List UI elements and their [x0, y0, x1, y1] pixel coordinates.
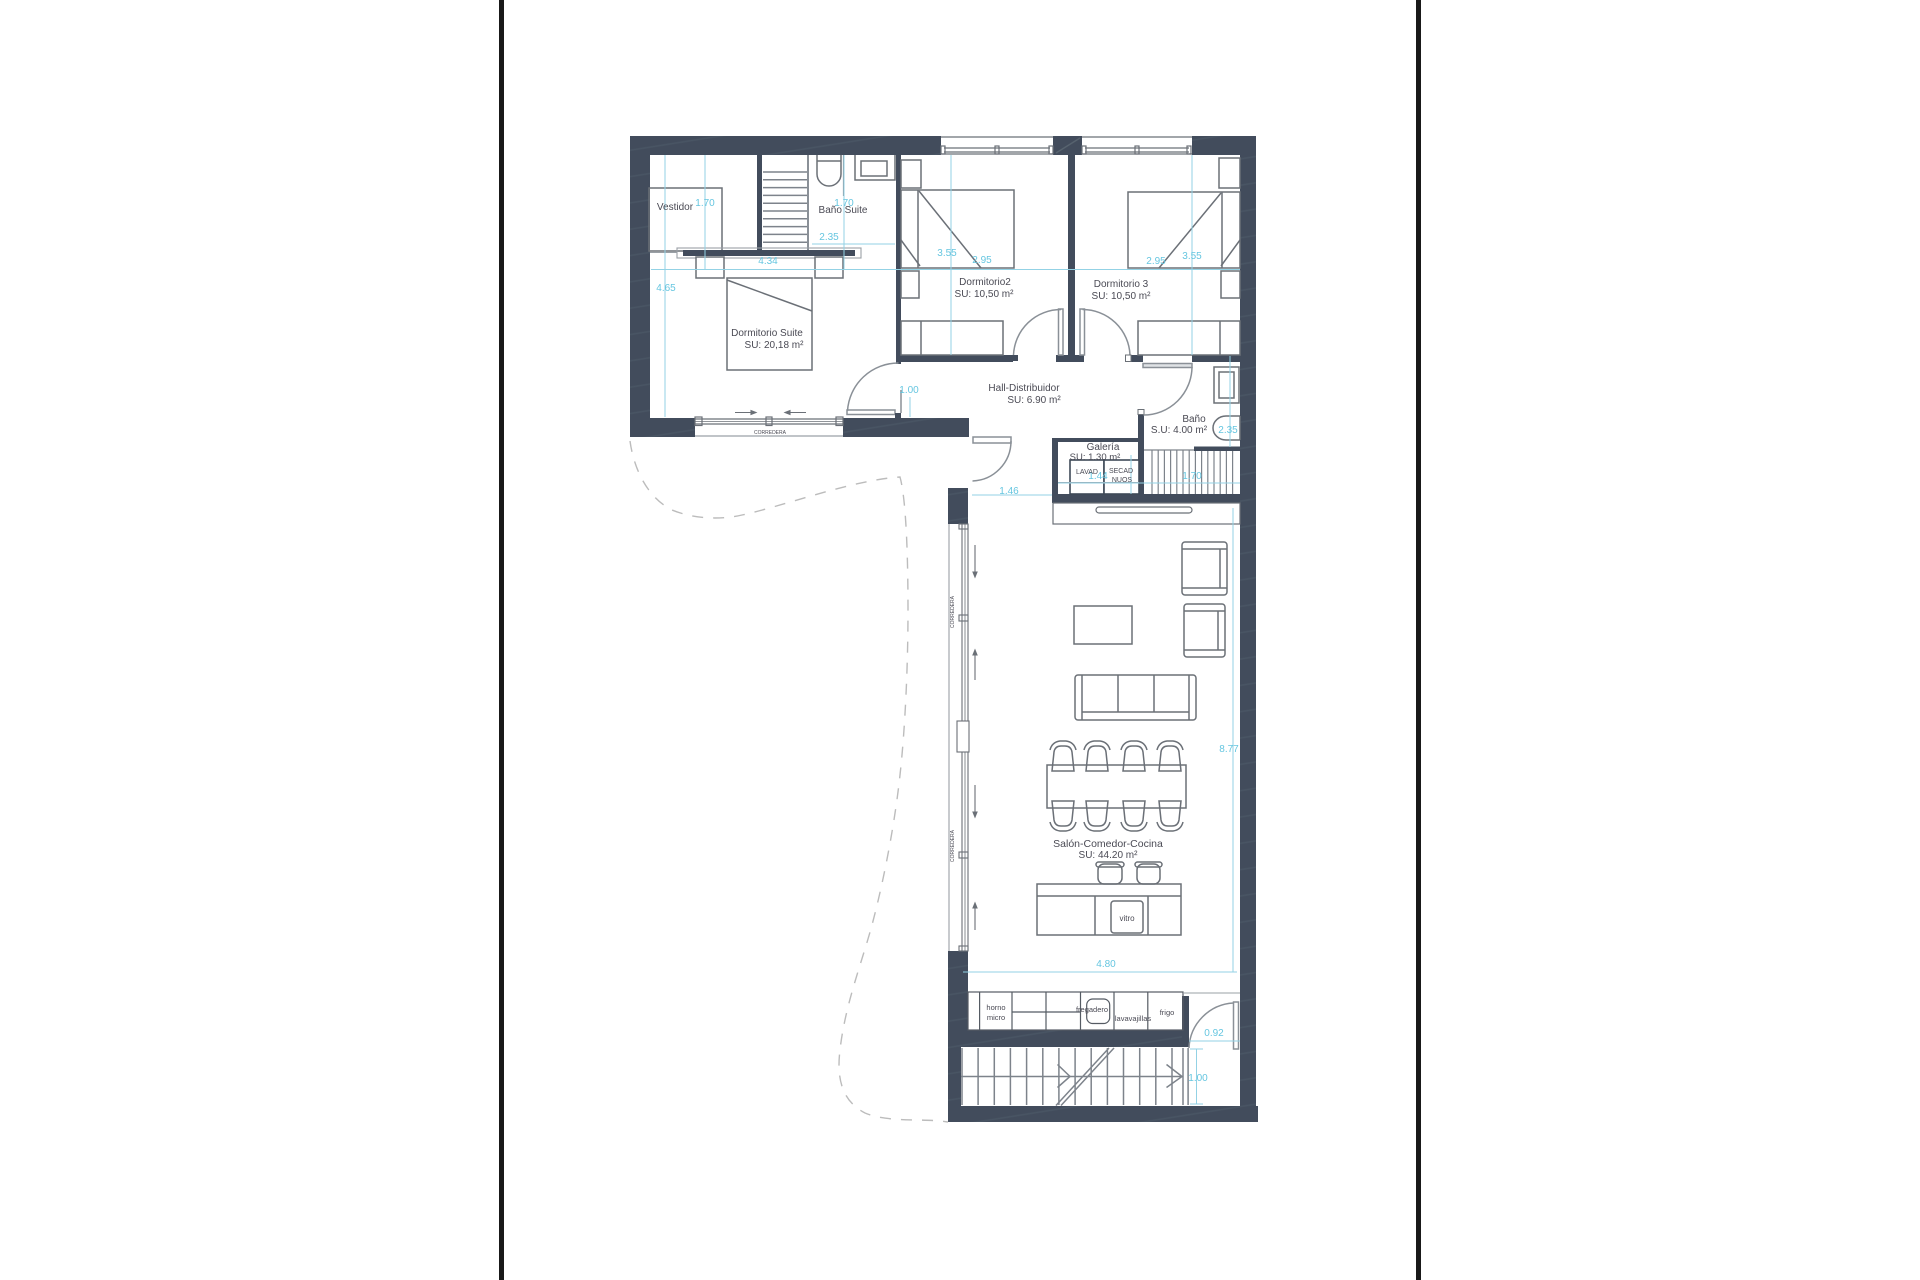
- svg-text:3.55: 3.55: [937, 248, 957, 259]
- svg-text:4.80: 4.80: [1096, 959, 1116, 970]
- svg-text:SU: 1.30 m²: SU: 1.30 m²: [1070, 452, 1121, 463]
- svg-text:Baño: Baño: [1182, 414, 1206, 425]
- svg-text:Baño Suite: Baño Suite: [819, 205, 868, 216]
- svg-text:SU: 10,50 m²: SU: 10,50 m²: [1092, 291, 1152, 302]
- svg-text:NUOS: NUOS: [1112, 477, 1133, 484]
- svg-text:1.70: 1.70: [1182, 471, 1202, 482]
- svg-text:CORREDERA: CORREDERA: [950, 829, 956, 862]
- svg-text:0.92: 0.92: [1204, 1028, 1224, 1039]
- svg-text:SU: 44.20 m²: SU: 44.20 m²: [1079, 850, 1139, 861]
- svg-text:CORREDERA: CORREDERA: [950, 595, 956, 628]
- svg-text:2.35: 2.35: [819, 232, 839, 243]
- svg-text:horno: horno: [986, 1003, 1005, 1012]
- svg-text:2.95: 2.95: [1146, 256, 1166, 267]
- svg-text:3.55: 3.55: [1182, 251, 1202, 262]
- svg-text:Vestidor: Vestidor: [657, 202, 694, 213]
- svg-text:SU: 6.90 m²: SU: 6.90 m²: [1007, 395, 1061, 406]
- svg-text:2.35: 2.35: [1218, 425, 1238, 436]
- svg-text:vitro: vitro: [1119, 914, 1135, 923]
- svg-text:S.U: 4.00 m²: S.U: 4.00 m²: [1151, 425, 1208, 436]
- svg-text:micro: micro: [987, 1013, 1005, 1022]
- svg-text:frigo: frigo: [1160, 1008, 1175, 1017]
- svg-text:4.34: 4.34: [758, 256, 778, 267]
- svg-text:1.46: 1.46: [999, 486, 1019, 497]
- svg-text:2.95: 2.95: [972, 255, 992, 266]
- svg-text:SU: 10,50 m²: SU: 10,50 m²: [955, 289, 1015, 300]
- svg-text:8.77: 8.77: [1219, 744, 1239, 755]
- svg-text:SECAD: SECAD: [1109, 468, 1133, 475]
- svg-text:lavavajillas: lavavajillas: [1115, 1014, 1152, 1023]
- svg-text:1.70: 1.70: [695, 198, 715, 209]
- svg-text:SU: 20,18 m²: SU: 20,18 m²: [745, 340, 805, 351]
- svg-text:Hall-Distribuidor: Hall-Distribuidor: [988, 383, 1060, 394]
- svg-text:LAVAD: LAVAD: [1076, 469, 1098, 476]
- svg-text:fregadero: fregadero: [1076, 1005, 1108, 1014]
- svg-text:Dormitorio2: Dormitorio2: [959, 277, 1011, 288]
- svg-text:Dormitorio 3: Dormitorio 3: [1094, 279, 1149, 290]
- svg-text:4.65: 4.65: [656, 283, 676, 294]
- svg-text:CORREDERA: CORREDERA: [754, 430, 787, 436]
- svg-text:Salón-Comedor-Cocina: Salón-Comedor-Cocina: [1053, 838, 1163, 850]
- svg-text:1.00: 1.00: [1188, 1073, 1208, 1084]
- svg-text:Dormitorio Suite: Dormitorio Suite: [731, 328, 803, 339]
- svg-text:1.00: 1.00: [899, 385, 919, 396]
